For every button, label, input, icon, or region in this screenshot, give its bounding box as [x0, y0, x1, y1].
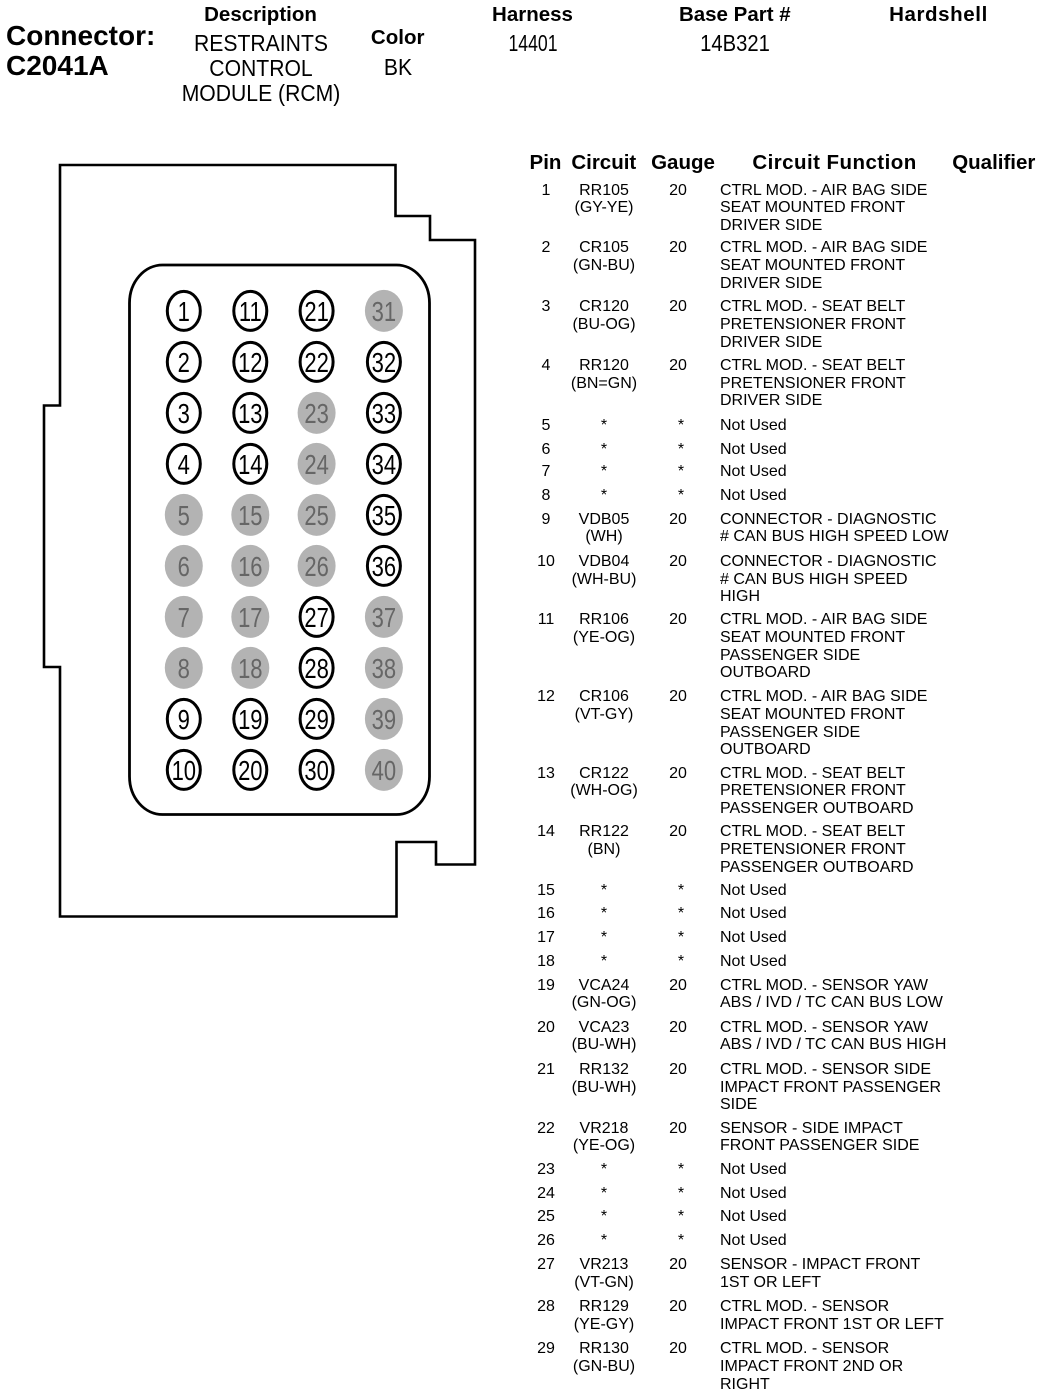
svg-text:16: 16 [238, 552, 262, 583]
svg-text:32: 32 [372, 348, 396, 379]
svg-text:2: 2 [178, 348, 190, 379]
svg-text:5: 5 [178, 501, 190, 532]
svg-text:30: 30 [304, 756, 328, 787]
svg-text:8: 8 [178, 654, 190, 685]
svg-text:31: 31 [372, 297, 396, 328]
svg-text:4: 4 [178, 450, 190, 481]
svg-text:18: 18 [238, 654, 262, 685]
svg-text:37: 37 [372, 603, 396, 634]
svg-text:14: 14 [238, 450, 263, 481]
svg-text:10: 10 [172, 756, 196, 787]
svg-text:19: 19 [238, 705, 262, 736]
svg-text:6: 6 [178, 552, 190, 583]
svg-text:35: 35 [372, 501, 396, 532]
svg-text:36: 36 [372, 552, 396, 583]
svg-text:34: 34 [372, 450, 397, 481]
svg-text:25: 25 [304, 501, 328, 532]
svg-text:27: 27 [304, 603, 328, 634]
svg-text:29: 29 [304, 705, 328, 736]
svg-text:17: 17 [238, 603, 262, 634]
svg-text:3: 3 [178, 399, 190, 430]
svg-text:13: 13 [238, 399, 262, 430]
svg-text:1: 1 [178, 297, 190, 328]
svg-text:7: 7 [178, 603, 190, 634]
svg-text:33: 33 [372, 399, 396, 430]
svg-text:24: 24 [304, 450, 329, 481]
svg-text:40: 40 [372, 756, 396, 787]
svg-text:12: 12 [238, 348, 262, 379]
svg-text:21: 21 [304, 297, 328, 328]
svg-text:38: 38 [372, 654, 396, 685]
svg-text:11: 11 [239, 297, 262, 328]
svg-text:20: 20 [238, 756, 262, 787]
svg-text:22: 22 [304, 348, 328, 379]
svg-text:15: 15 [238, 501, 262, 532]
svg-text:26: 26 [304, 552, 328, 583]
svg-text:28: 28 [304, 654, 328, 685]
svg-text:39: 39 [372, 705, 396, 736]
svg-text:23: 23 [304, 399, 328, 430]
svg-text:9: 9 [178, 705, 190, 736]
